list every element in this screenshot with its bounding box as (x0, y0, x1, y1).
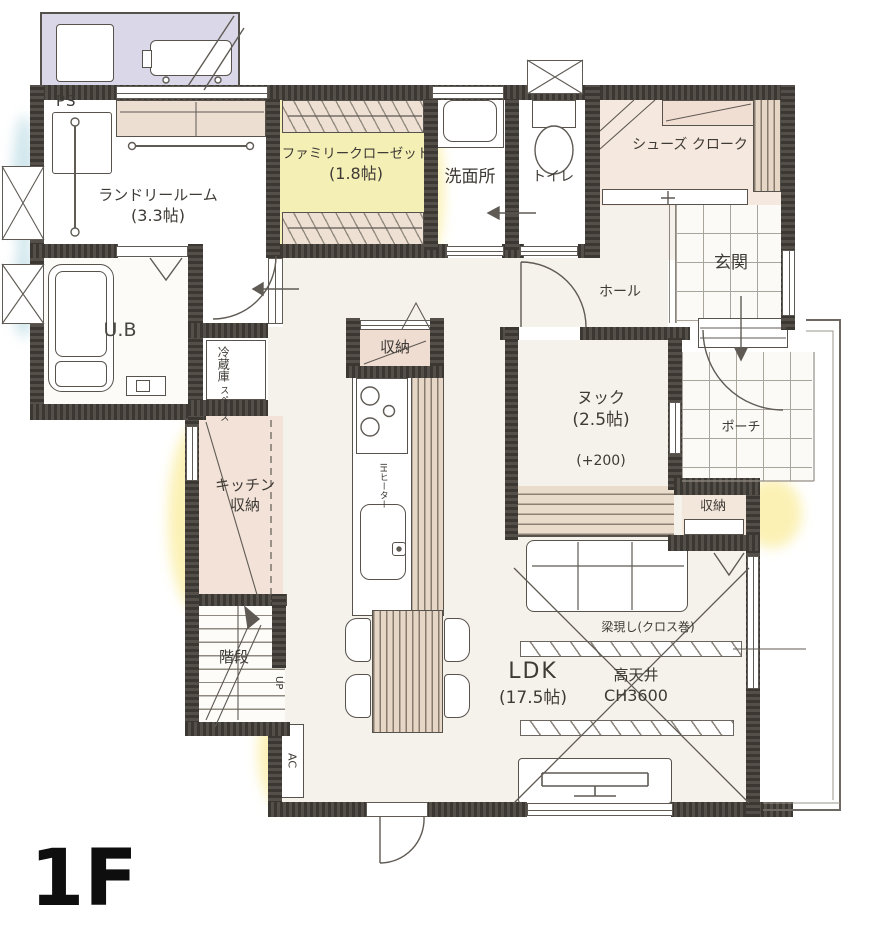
ceiling-line1: 高天井 (613, 666, 658, 684)
laundry-label: ランドリールーム (3.3帖) (98, 186, 218, 226)
beam-text: 梁現し(クロス巻) (601, 620, 694, 634)
laundry-name: ランドリールーム (98, 186, 218, 204)
nook-size: (2.5帖) (572, 409, 629, 431)
nook-label: ヌック (2.5帖) (572, 388, 629, 431)
shoes-cloak-name: シューズ クローク (632, 137, 748, 153)
stairs-up-text: UP (273, 676, 284, 689)
beam-label: 梁現し(クロス巻) (601, 620, 694, 636)
kitchen-storage-label: キッチン 収納 (215, 476, 275, 515)
hall-name: ホール (599, 284, 641, 300)
shoes-cloak-label: シューズ クローク (632, 136, 748, 154)
kitchen-storage-line1: キッチン (215, 476, 275, 494)
genkan-name: 玄関 (714, 253, 748, 273)
ldk-size: (17.5帖) (499, 687, 567, 709)
genkan-label: 玄関 (714, 252, 748, 274)
washroom-label: 洗面所 (445, 166, 496, 188)
nook-floor-height: (+200) (576, 453, 625, 469)
ih-text: IHヒーター (378, 463, 388, 508)
toilet-name: トイレ (532, 169, 574, 185)
kitchen-closet-label: 収納 (380, 338, 410, 358)
ceiling-line2: CH3600 (604, 686, 668, 707)
porch-name: ポーチ (721, 420, 760, 435)
nook-closet-name: 収納 (700, 499, 726, 514)
ceiling-label: 高天井 CH3600 (604, 666, 668, 706)
stairs-up-label: UP (272, 668, 285, 698)
ac-text: AC (285, 753, 298, 768)
ldk-label: LDK (17.5帖) (499, 658, 567, 709)
floor-plan-1f: PS ランドリールーム (3.3帖) ファミリークローゼット (1.8帖) 洗面… (0, 0, 875, 950)
porch-label: ポーチ (721, 420, 760, 437)
fridge-line2: スペース (218, 386, 228, 422)
ps-text: PS (56, 92, 77, 110)
unit-bath-label: U.B (104, 318, 137, 343)
floor-title-text: 1F (30, 834, 138, 924)
laundry-size: (3.3帖) (98, 206, 218, 227)
washroom-name: 洗面所 (445, 167, 496, 187)
kitchen-closet-name: 収納 (380, 338, 410, 356)
kitchen-storage-line2: 収納 (215, 496, 275, 516)
stairs-name: 階段 (219, 648, 249, 666)
fridge-line1: 冷蔵庫 (216, 346, 230, 382)
nook-floor-height-label: (+200) (576, 452, 625, 470)
floor-title: 1F (30, 840, 138, 918)
ac-label: AC (284, 736, 298, 786)
nook-name: ヌック (577, 388, 625, 407)
toilet-label: トイレ (532, 168, 574, 186)
family-closet-size: (1.8帖) (282, 164, 431, 185)
stairs-label: 階段 (219, 648, 249, 668)
family-closet-name: ファミリークローゼット (282, 146, 431, 162)
ldk-name: LDK (508, 659, 558, 684)
ih-label: IHヒーター (376, 458, 388, 514)
hall-label: ホール (599, 283, 641, 301)
nook-closet-label: 収納 (700, 499, 726, 516)
family-closet-label: ファミリークローゼット (1.8帖) (282, 146, 431, 184)
fridge-space-label: 冷蔵庫 スペース (216, 346, 229, 396)
unit-bath-name: U.B (104, 319, 137, 341)
ps-label: PS (56, 92, 77, 112)
